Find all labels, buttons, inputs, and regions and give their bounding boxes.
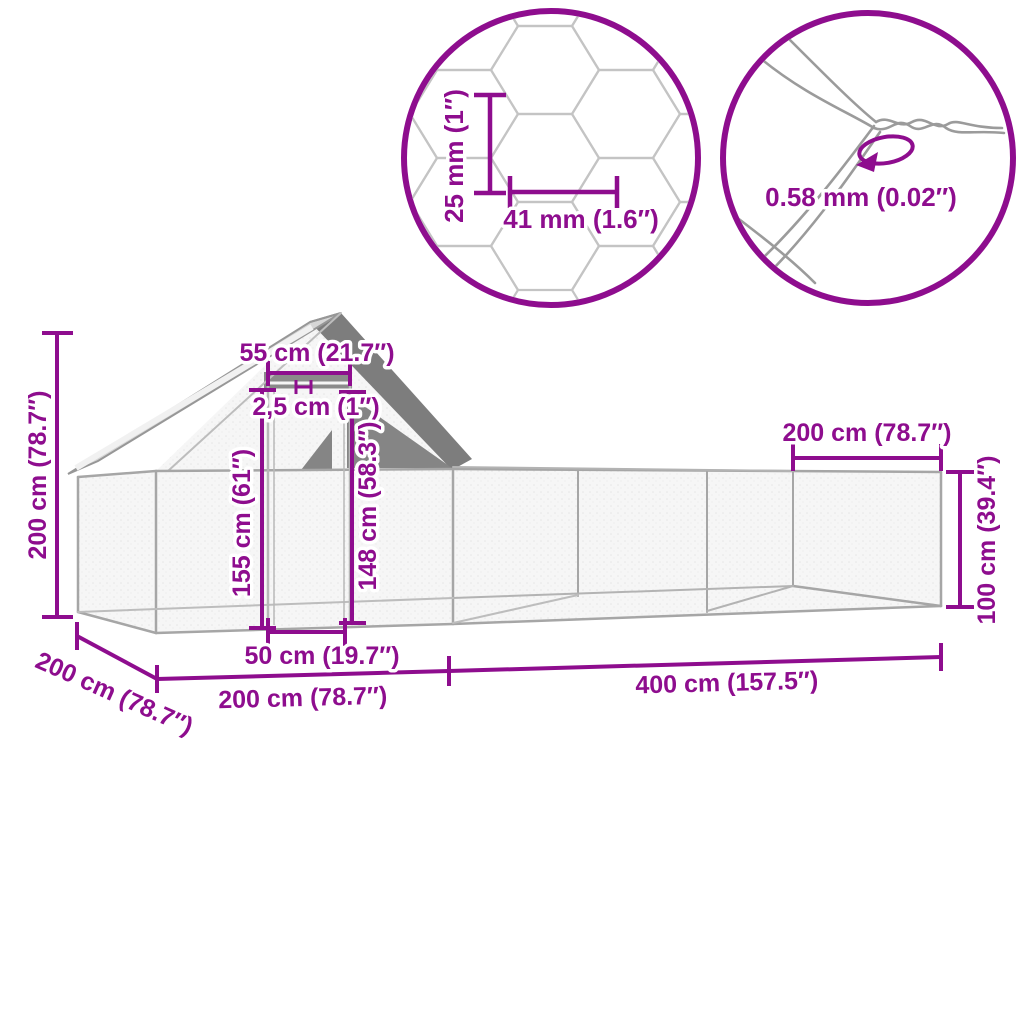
mesh-width-label: 41 mm (1.6″) (503, 204, 659, 234)
opening-height-label: 148 cm (58.3″) (354, 421, 382, 590)
total-height-label: 200 cm (78.7″) (24, 390, 52, 559)
wire-thickness-label: 0.58 mm (0.02″) (765, 182, 957, 212)
dim-run-wall-height (946, 472, 974, 607)
product-dimension-diagram: 25 mm (1″) 41 mm (1.6″) 0.58 mm (0.02″) … (0, 0, 1024, 1024)
depth-label: 200 cm (78.7″) (31, 647, 197, 741)
dim-end-width (793, 444, 941, 471)
coop-structure (68, 313, 941, 633)
end-width-label: 200 cm (78.7″) (782, 419, 951, 447)
run-front-wall-panel (453, 469, 941, 624)
coop-length-label: 200 cm (78.7″) (218, 682, 388, 714)
panel-gap-label: 2,5 cm (1″) (252, 393, 379, 421)
dimension-line (449, 657, 941, 671)
dimension-line (157, 671, 449, 679)
door-height-label: 155 cm (61″) (228, 449, 256, 597)
ridge-width-label: 55 cm (21.7″) (239, 339, 394, 367)
wire-detail-inset (723, 13, 1013, 303)
door-width-label: 50 cm (19.7″) (244, 642, 399, 670)
diagram-canvas: 25 mm (1″) 41 mm (1.6″) 0.58 mm (0.02″) … (0, 0, 1024, 1024)
run-wall-height-label: 100 cm (39.4″) (973, 455, 1001, 624)
run-length-label: 400 cm (157.5″) (635, 666, 819, 699)
mesh-detail-inset (329, 0, 761, 334)
mesh-height-label: 25 mm (1″) (439, 89, 469, 223)
